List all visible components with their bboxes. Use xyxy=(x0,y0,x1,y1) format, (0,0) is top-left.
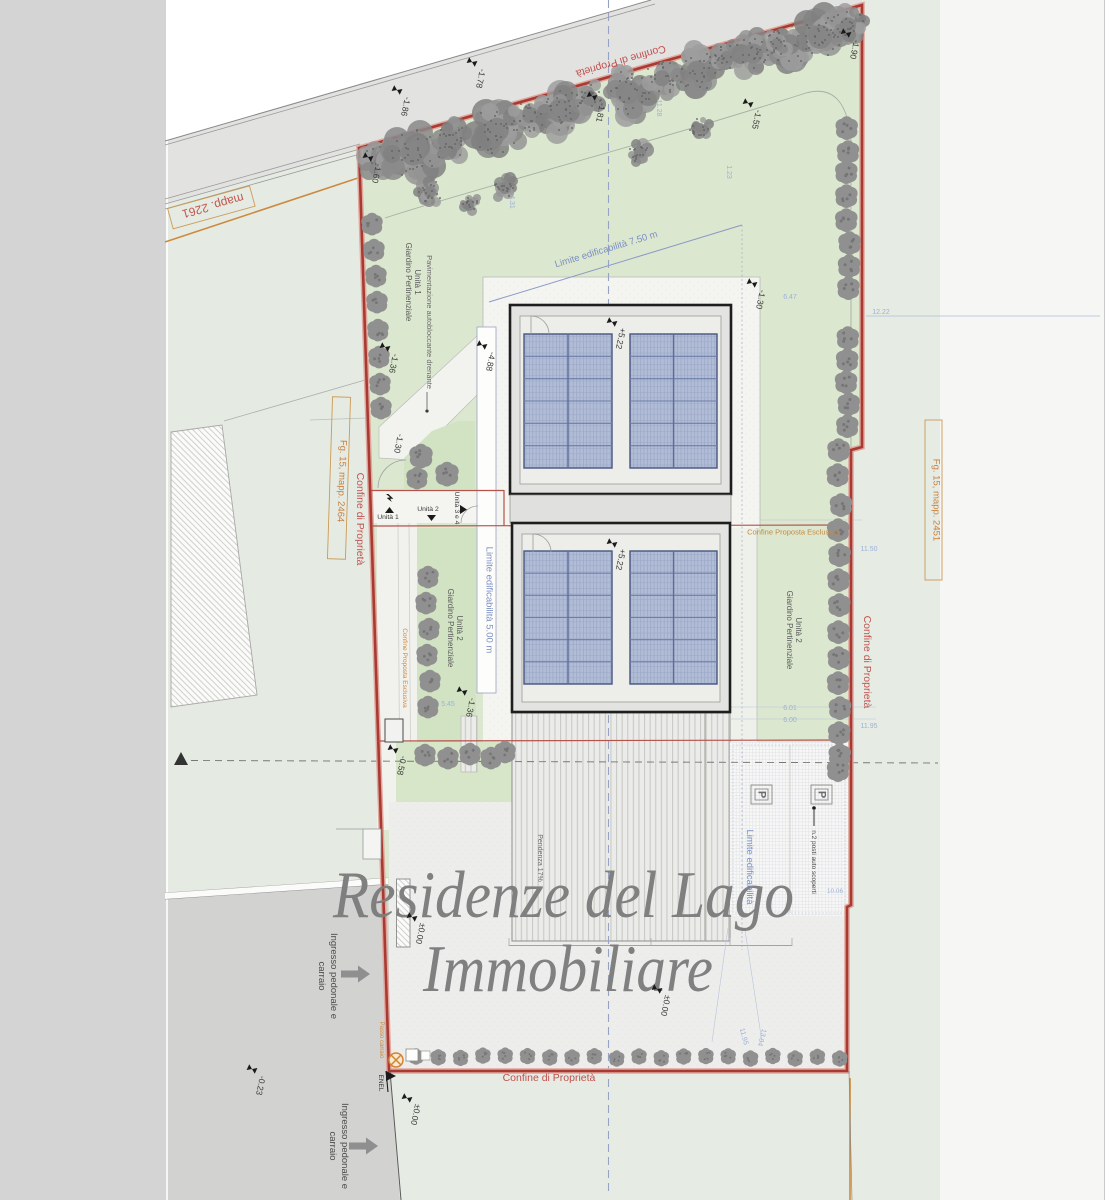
svg-text:n.2 posti auto scoperti: n.2 posti auto scoperti xyxy=(810,830,817,894)
svg-text:ENEL: ENEL xyxy=(377,1075,384,1092)
svg-text:11.95: 11.95 xyxy=(861,723,878,730)
svg-text:6.47: 6.47 xyxy=(783,294,797,301)
svg-text:Confine di Proprietà: Confine di Proprietà xyxy=(354,473,366,566)
svg-text:P: P xyxy=(756,791,768,798)
svg-text:11.28: 11.28 xyxy=(655,100,662,117)
svg-text:11.50: 11.50 xyxy=(861,546,878,553)
svg-text:Unità 1: Unità 1 xyxy=(413,269,422,295)
svg-text:Pendenza 17%: Pendenza 17% xyxy=(536,834,543,881)
svg-text:Residenze del Lago: Residenze del Lago xyxy=(332,858,794,932)
svg-text:1.23: 1.23 xyxy=(725,165,732,179)
svg-text:4.31: 4.31 xyxy=(508,195,515,209)
svg-text:Unità 2: Unità 2 xyxy=(417,506,439,513)
svg-text:Fg. 15, mapp. 2451: Fg. 15, mapp. 2451 xyxy=(931,459,942,541)
svg-text:Ingresso pedonale e: Ingresso pedonale e xyxy=(339,1103,350,1189)
svg-text:Limite edificabilità 5.00 m: Limite edificabilità 5.00 m xyxy=(484,547,495,654)
svg-text:6.01: 6.01 xyxy=(783,705,797,712)
svg-text:12.22: 12.22 xyxy=(872,309,890,316)
svg-text:Confine di Proprietà: Confine di Proprietà xyxy=(861,616,873,709)
svg-text:Giardino Pertinenziale: Giardino Pertinenziale xyxy=(785,591,794,670)
svg-text:Confine Proposta Esclusiva: Confine Proposta Esclusiva xyxy=(401,628,408,708)
svg-text:Giardino Pertinenziale: Giardino Pertinenziale xyxy=(404,243,413,322)
svg-text:Limite edificabilità: Limite edificabilità xyxy=(744,830,755,906)
svg-text:5.45: 5.45 xyxy=(441,701,455,708)
svg-text:carraio: carraio xyxy=(327,1131,338,1160)
svg-text:Confine Proposta Esclusiva: Confine Proposta Esclusiva xyxy=(747,528,840,537)
svg-text:6.00: 6.00 xyxy=(783,717,797,724)
svg-text:carraio: carraio xyxy=(316,961,327,990)
svg-text:P: P xyxy=(816,791,828,798)
svg-text:10.06: 10.06 xyxy=(827,888,844,895)
svg-text:Unità 2: Unità 2 xyxy=(794,617,803,643)
svg-text:Giardino Pertinenziale: Giardino Pertinenziale xyxy=(446,589,455,668)
svg-text:Confine di Proprietà: Confine di Proprietà xyxy=(503,1072,596,1084)
svg-text:Pavimentazione autobloccante d: Pavimentazione autobloccante drenante xyxy=(425,255,434,389)
svg-text:Ingresso pedonale e: Ingresso pedonale e xyxy=(328,933,339,1019)
svg-text:Unità 3 e 4: Unità 3 e 4 xyxy=(453,492,460,525)
svg-text:Passo carraio: Passo carraio xyxy=(378,1022,384,1059)
svg-text:Unità 2: Unità 2 xyxy=(455,615,464,641)
svg-text:Unità 1: Unità 1 xyxy=(377,514,399,521)
